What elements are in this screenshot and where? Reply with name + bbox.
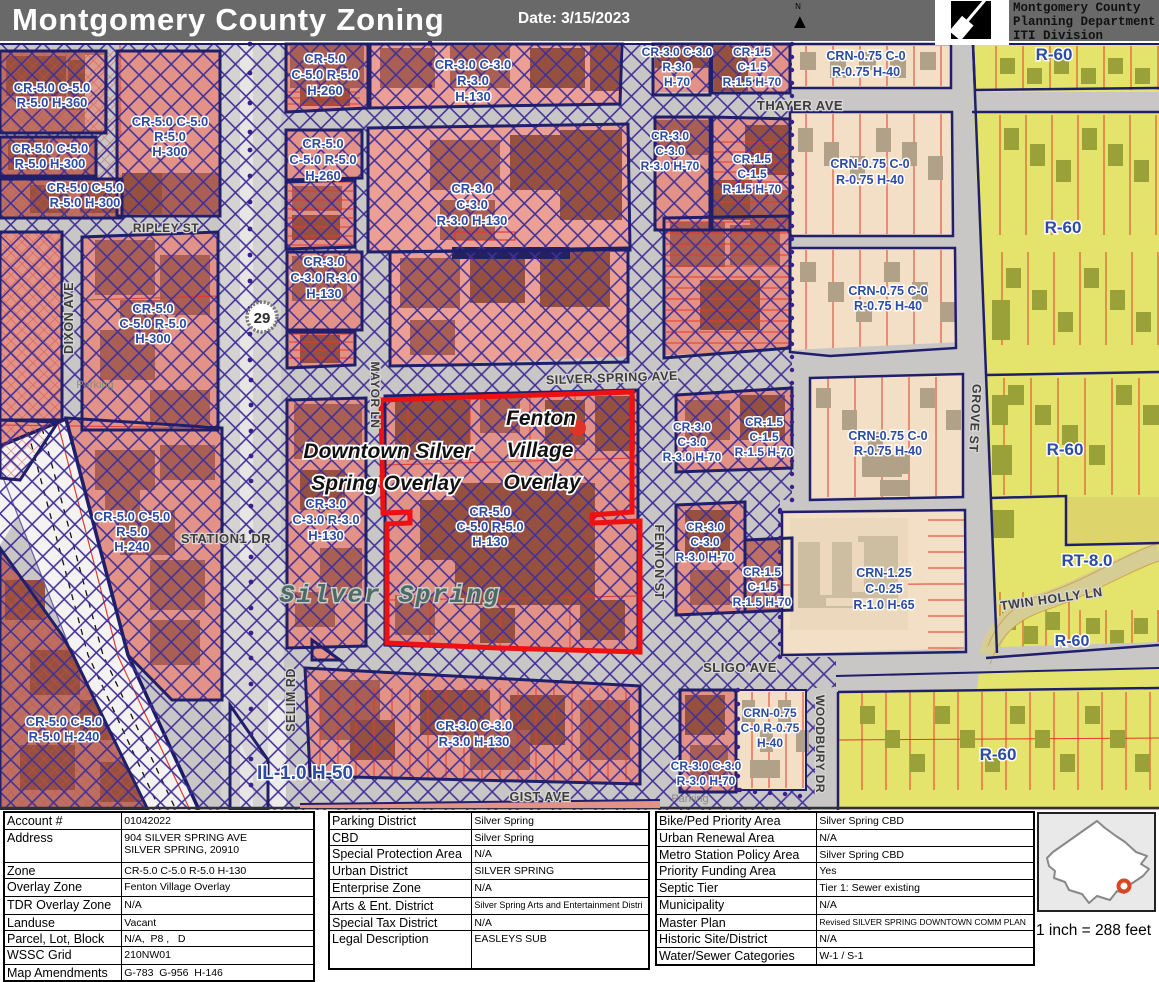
svg-text:GIST AVE: GIST AVE bbox=[510, 790, 571, 804]
svg-text:C-3.0 R-3.0: C-3.0 R-3.0 bbox=[290, 270, 357, 285]
svg-text:R-0.75 H-40: R-0.75 H-40 bbox=[832, 65, 900, 79]
svg-text:R-5.0 H-300: R-5.0 H-300 bbox=[15, 156, 86, 171]
svg-text:R-60: R-60 bbox=[1036, 45, 1073, 64]
svg-text:R-60: R-60 bbox=[980, 745, 1017, 764]
svg-text:CR-5.0 C-5.0: CR-5.0 C-5.0 bbox=[47, 180, 124, 195]
svg-text:C-3.0: C-3.0 bbox=[456, 197, 488, 212]
svg-text:C-3.0 R-3.0: C-3.0 R-3.0 bbox=[292, 512, 359, 527]
svg-text:WOODBURY DR: WOODBURY DR bbox=[813, 695, 827, 793]
svg-text:SLIGO AVE: SLIGO AVE bbox=[703, 660, 777, 675]
svg-text:C-5.0 R-5.0: C-5.0 R-5.0 bbox=[289, 152, 356, 167]
svg-text:R-3.0 H-70: R-3.0 H-70 bbox=[677, 774, 736, 788]
svg-text:C-5.0 R-5.0: C-5.0 R-5.0 bbox=[291, 67, 358, 82]
svg-text:R-1.5 H-70: R-1.5 H-70 bbox=[735, 445, 794, 459]
svg-text:R-5.0: R-5.0 bbox=[116, 524, 148, 539]
svg-text:R-5.0 H-240: R-5.0 H-240 bbox=[29, 729, 100, 744]
svg-text:C-1.5: C-1.5 bbox=[747, 580, 777, 594]
svg-text:H-40: H-40 bbox=[757, 736, 783, 750]
svg-text:CR-3.0: CR-3.0 bbox=[303, 254, 344, 269]
svg-text:CR-1.5: CR-1.5 bbox=[743, 565, 781, 579]
svg-text:R-1.5 H-70: R-1.5 H-70 bbox=[723, 75, 782, 89]
svg-text:CR-3.0 C-3.0: CR-3.0 C-3.0 bbox=[671, 759, 742, 773]
svg-text:R-5.0 H-300: R-5.0 H-300 bbox=[50, 195, 121, 210]
svg-text:Spring Overlay: Spring Overlay bbox=[311, 472, 462, 495]
svg-text:CR-5.0: CR-5.0 bbox=[304, 51, 345, 66]
svg-text:H-300: H-300 bbox=[152, 144, 187, 159]
svg-text:Parking: Parking bbox=[671, 793, 708, 805]
svg-text:C-5.0 R-5.0: C-5.0 R-5.0 bbox=[119, 316, 186, 331]
svg-text:CRN-1.25: CRN-1.25 bbox=[856, 566, 912, 580]
svg-text:R-0.75 H-40: R-0.75 H-40 bbox=[854, 299, 922, 313]
svg-text:C-1.5: C-1.5 bbox=[737, 167, 767, 181]
svg-text:C-5.0 R-5.0: C-5.0 R-5.0 bbox=[456, 519, 523, 534]
svg-text:Overlay: Overlay bbox=[503, 471, 581, 494]
svg-text:CR-3.0: CR-3.0 bbox=[686, 520, 724, 534]
svg-text:CRN-0.75 C-0: CRN-0.75 C-0 bbox=[830, 157, 909, 171]
svg-text:SELIM RD: SELIM RD bbox=[284, 668, 298, 732]
svg-text:C-3.0: C-3.0 bbox=[655, 144, 685, 158]
svg-text:R-5.0 H-360: R-5.0 H-360 bbox=[17, 95, 88, 110]
svg-text:R-5.0: R-5.0 bbox=[154, 129, 186, 144]
svg-text:R-1.5 H-70: R-1.5 H-70 bbox=[723, 182, 782, 196]
svg-text:H-130: H-130 bbox=[455, 89, 490, 104]
svg-text:R-1.5 H-70: R-1.5 H-70 bbox=[733, 595, 792, 609]
svg-text:CR-5.0 C-5.0: CR-5.0 C-5.0 bbox=[132, 114, 209, 129]
svg-text:CR-3.0 C-3.0: CR-3.0 C-3.0 bbox=[436, 718, 513, 733]
svg-text:RT-8.0: RT-8.0 bbox=[1061, 551, 1112, 570]
svg-text:C-1.5: C-1.5 bbox=[749, 430, 779, 444]
svg-text:R-3.0 H-70: R-3.0 H-70 bbox=[663, 450, 722, 464]
svg-text:IL-1.0 H-50: IL-1.0 H-50 bbox=[257, 763, 353, 784]
svg-text:H-260: H-260 bbox=[305, 168, 340, 183]
svg-text:R-60: R-60 bbox=[1047, 440, 1084, 459]
svg-text:C-3.0: C-3.0 bbox=[677, 435, 707, 449]
svg-text:Village: Village bbox=[507, 439, 574, 462]
svg-text:C-0.25: C-0.25 bbox=[865, 582, 903, 596]
svg-text:CR-3.0: CR-3.0 bbox=[673, 420, 711, 434]
svg-text:C-1.5: C-1.5 bbox=[737, 60, 767, 74]
svg-text:Silver Spring: Silver Spring bbox=[279, 581, 500, 610]
svg-text:C-3.0: C-3.0 bbox=[690, 535, 720, 549]
svg-text:CR-3.0 C-3.0: CR-3.0 C-3.0 bbox=[642, 45, 713, 59]
svg-text:R-3.0: R-3.0 bbox=[662, 60, 692, 74]
svg-text:CRN-0.75: CRN-0.75 bbox=[743, 706, 797, 720]
svg-text:DIXON AVE: DIXON AVE bbox=[62, 282, 76, 354]
svg-text:H-300: H-300 bbox=[135, 331, 170, 346]
svg-text:CR-5.0: CR-5.0 bbox=[302, 136, 343, 151]
svg-text:FENTON ST: FENTON ST bbox=[652, 524, 666, 599]
svg-text:CR-5.0 C-5.0: CR-5.0 C-5.0 bbox=[14, 80, 91, 95]
svg-text:CR-3.0 C-3.0: CR-3.0 C-3.0 bbox=[435, 57, 512, 72]
svg-text:CRN-0.75 C-0: CRN-0.75 C-0 bbox=[848, 429, 927, 443]
svg-text:R-3.0 H-130: R-3.0 H-130 bbox=[439, 734, 510, 749]
svg-text:H-130: H-130 bbox=[308, 528, 343, 543]
svg-text:Parking: Parking bbox=[76, 379, 113, 391]
svg-text:H-260: H-260 bbox=[307, 83, 342, 98]
svg-text:R-3.0 H-130: R-3.0 H-130 bbox=[437, 213, 508, 228]
svg-text:H-130: H-130 bbox=[472, 534, 507, 549]
svg-text:MAYOR LN: MAYOR LN bbox=[368, 362, 382, 429]
svg-text:CR-1.5: CR-1.5 bbox=[733, 152, 771, 166]
svg-text:STATION1 DR: STATION1 DR bbox=[181, 531, 271, 546]
svg-text:R-3.0: R-3.0 bbox=[457, 73, 489, 88]
svg-text:CR-5.0 C-5.0: CR-5.0 C-5.0 bbox=[26, 714, 103, 729]
svg-text:RIPLEY ST: RIPLEY ST bbox=[133, 221, 199, 235]
svg-text:Downtown Silver: Downtown Silver bbox=[303, 440, 474, 463]
svg-text:CR-1.5: CR-1.5 bbox=[745, 415, 783, 429]
svg-text:R-60: R-60 bbox=[1055, 633, 1090, 650]
svg-text:R-3.0 H-70: R-3.0 H-70 bbox=[641, 159, 700, 173]
svg-text:R-0.75 H-40: R-0.75 H-40 bbox=[854, 444, 922, 458]
svg-text:C-0 R-0.75: C-0 R-0.75 bbox=[741, 721, 800, 735]
svg-text:H-70: H-70 bbox=[664, 75, 690, 89]
svg-text:CRN-0.75 C-0: CRN-0.75 C-0 bbox=[848, 284, 927, 298]
svg-text:THAYER AVE: THAYER AVE bbox=[757, 98, 843, 113]
svg-text:R-1.0 H-65: R-1.0 H-65 bbox=[853, 598, 914, 612]
svg-text:H-240: H-240 bbox=[114, 539, 149, 554]
svg-text:CR-5.0: CR-5.0 bbox=[469, 504, 510, 519]
svg-text:Fenton: Fenton bbox=[506, 407, 576, 430]
svg-text:CRN-0.75 C-0: CRN-0.75 C-0 bbox=[826, 49, 905, 63]
svg-text:CR-5.0 C-5.0: CR-5.0 C-5.0 bbox=[94, 509, 171, 524]
svg-text:CR-1.5: CR-1.5 bbox=[733, 45, 771, 59]
svg-text:CR-3.0: CR-3.0 bbox=[305, 496, 346, 511]
svg-text:R-3.0 H-70: R-3.0 H-70 bbox=[676, 550, 735, 564]
svg-text:R-60: R-60 bbox=[1045, 218, 1082, 237]
svg-text:CR-3.0: CR-3.0 bbox=[451, 181, 492, 196]
svg-text:R-0.75 H-40: R-0.75 H-40 bbox=[836, 173, 904, 187]
svg-text:CR-3.0: CR-3.0 bbox=[651, 129, 689, 143]
svg-text:H-130: H-130 bbox=[306, 286, 341, 301]
svg-text:CR-5.0: CR-5.0 bbox=[132, 301, 173, 316]
svg-text:CR-5.0 C-5.0: CR-5.0 C-5.0 bbox=[12, 141, 89, 156]
svg-text:29: 29 bbox=[254, 310, 271, 327]
